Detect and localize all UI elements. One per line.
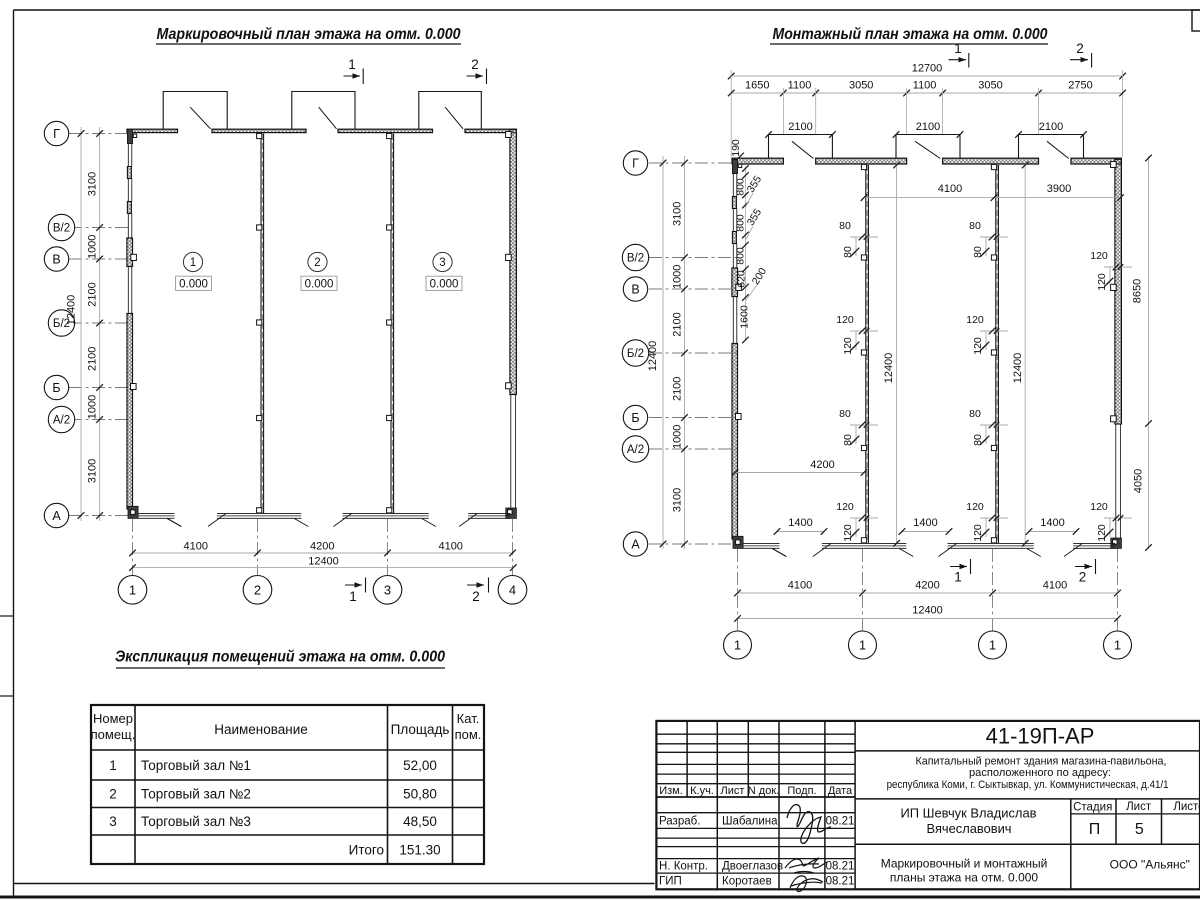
- svg-text:1000: 1000: [672, 265, 684, 289]
- svg-text:4100: 4100: [438, 541, 462, 553]
- svg-text:Стадия: Стадия: [1073, 801, 1112, 813]
- svg-text:80: 80: [972, 434, 984, 446]
- svg-text:Шабалина: Шабалина: [722, 816, 778, 828]
- svg-text:1650: 1650: [745, 80, 769, 92]
- svg-text:120: 120: [972, 524, 984, 542]
- svg-text:52,00: 52,00: [403, 758, 437, 773]
- svg-text:1100: 1100: [788, 80, 812, 92]
- svg-text:2: 2: [254, 583, 261, 598]
- svg-text:12400: 12400: [883, 353, 895, 384]
- svg-text:41-19П-АР: 41-19П-АР: [986, 724, 1095, 749]
- svg-text:120: 120: [1096, 524, 1108, 542]
- svg-text:1: 1: [954, 570, 962, 585]
- svg-text:2100: 2100: [788, 121, 812, 133]
- svg-text:3100: 3100: [672, 488, 684, 512]
- svg-text:1400: 1400: [1040, 517, 1064, 529]
- svg-text:120: 120: [966, 314, 984, 326]
- svg-text:К.уч.: К.уч.: [690, 785, 714, 797]
- svg-text:3: 3: [439, 257, 445, 269]
- svg-text:1: 1: [348, 57, 356, 72]
- svg-text:3100: 3100: [87, 459, 99, 483]
- svg-text:Б: Б: [631, 411, 639, 425]
- svg-text:4100: 4100: [1043, 580, 1067, 592]
- svg-text:1000: 1000: [87, 235, 99, 259]
- svg-text:Маркировочный план этажа на от: Маркировочный план этажа на отм. 0.000: [157, 26, 461, 43]
- svg-text:Изм.: Изм.: [659, 785, 683, 797]
- svg-text:120: 120: [842, 337, 854, 355]
- svg-text:Подп.: Подп.: [787, 785, 816, 797]
- svg-text:А/2: А/2: [627, 444, 644, 456]
- svg-text:12400: 12400: [308, 555, 339, 567]
- svg-text:Номер: Номер: [93, 711, 133, 726]
- svg-text:1: 1: [1114, 638, 1121, 653]
- svg-text:08.21: 08.21: [826, 861, 855, 873]
- svg-text:1600: 1600: [739, 305, 751, 329]
- svg-text:2100: 2100: [916, 121, 940, 133]
- svg-text:2: 2: [472, 589, 480, 604]
- svg-text:8650: 8650: [1132, 279, 1144, 303]
- svg-text:Б/2: Б/2: [627, 348, 644, 360]
- svg-text:4100: 4100: [938, 183, 962, 195]
- svg-text:120: 120: [842, 524, 854, 542]
- svg-text:5: 5: [1135, 821, 1144, 838]
- svg-text:Листов: Листов: [1173, 801, 1200, 813]
- svg-text:2: 2: [314, 257, 320, 269]
- svg-text:ИП Шевчук Владислав: ИП Шевчук Владислав: [901, 806, 1037, 820]
- svg-text:Н. Контр.: Н. Контр.: [659, 861, 708, 873]
- svg-text:2: 2: [1076, 41, 1084, 56]
- svg-text:4200: 4200: [915, 580, 939, 592]
- svg-text:2100: 2100: [672, 377, 684, 401]
- svg-text:4050: 4050: [1133, 469, 1145, 493]
- svg-text:190: 190: [730, 139, 742, 157]
- svg-text:Г: Г: [53, 127, 60, 141]
- svg-text:48,50: 48,50: [403, 814, 437, 829]
- svg-text:Площадь: Площадь: [391, 722, 450, 737]
- svg-text:1: 1: [989, 638, 996, 653]
- svg-text:Дата: Дата: [828, 785, 853, 797]
- svg-text:1: 1: [190, 257, 196, 269]
- svg-text:1: 1: [129, 583, 136, 598]
- svg-text:Б: Б: [52, 381, 60, 395]
- svg-text:120: 120: [1090, 250, 1108, 262]
- svg-text:Итого: Итого: [349, 843, 384, 858]
- svg-text:4100: 4100: [184, 541, 208, 553]
- svg-text:2100: 2100: [672, 312, 684, 336]
- svg-text:0.000: 0.000: [305, 278, 334, 290]
- svg-text:120: 120: [1090, 501, 1108, 513]
- svg-text:800: 800: [735, 214, 747, 232]
- svg-text:120: 120: [836, 501, 854, 513]
- svg-text:80: 80: [839, 220, 851, 232]
- svg-text:Торговый зал №3: Торговый зал №3: [141, 814, 251, 829]
- svg-text:1: 1: [954, 41, 962, 56]
- svg-text:1: 1: [109, 758, 117, 773]
- svg-text:Коротаев: Коротаев: [722, 876, 772, 888]
- svg-text:Лист: Лист: [721, 785, 745, 797]
- svg-text:республика Коми, г. Сыктывкар,: республика Коми, г. Сыктывкар, ул. Комму…: [887, 779, 1169, 791]
- svg-text:Монтажный план этажа на отм. 0: Монтажный план этажа на отм. 0.000: [773, 26, 1048, 43]
- svg-text:Лист: Лист: [1126, 801, 1152, 813]
- svg-text:120: 120: [836, 314, 854, 326]
- svg-text:120: 120: [966, 501, 984, 513]
- svg-text:800: 800: [735, 247, 747, 265]
- svg-text:1100: 1100: [913, 80, 937, 92]
- svg-text:80: 80: [839, 408, 851, 420]
- svg-text:Маркировочный и монтажный: Маркировочный и монтажный: [881, 856, 1048, 870]
- svg-text:N док.: N док.: [748, 785, 779, 797]
- svg-text:12700: 12700: [912, 63, 943, 75]
- svg-text:620: 620: [736, 270, 748, 288]
- svg-text:Вячеславович: Вячеславович: [927, 822, 1012, 836]
- svg-text:12400: 12400: [1012, 353, 1024, 384]
- svg-text:1000: 1000: [672, 425, 684, 449]
- svg-text:0.000: 0.000: [430, 278, 459, 290]
- svg-text:планы этажа на отм. 0.000: планы этажа на отм. 0.000: [890, 870, 1039, 884]
- svg-text:08.21: 08.21: [826, 816, 855, 828]
- svg-text:В: В: [631, 283, 639, 297]
- svg-text:2100: 2100: [87, 347, 99, 371]
- svg-text:151.30: 151.30: [399, 843, 440, 858]
- svg-text:2100: 2100: [87, 282, 99, 306]
- svg-text:А/2: А/2: [53, 415, 70, 427]
- svg-text:Двоеглазов: Двоеглазов: [722, 861, 783, 873]
- svg-text:80: 80: [842, 246, 854, 258]
- svg-text:В/2: В/2: [627, 253, 644, 265]
- svg-text:Торговый зал №2: Торговый зал №2: [141, 787, 251, 802]
- svg-text:4200: 4200: [310, 541, 334, 553]
- svg-text:А: А: [631, 538, 640, 552]
- svg-text:4100: 4100: [788, 580, 812, 592]
- svg-text:ООО "Альянс": ООО "Альянс": [1110, 858, 1190, 872]
- svg-text:Г: Г: [632, 157, 639, 171]
- svg-text:В/2: В/2: [53, 223, 70, 235]
- svg-text:2750: 2750: [1068, 80, 1092, 92]
- svg-text:В: В: [52, 253, 60, 267]
- svg-text:2: 2: [1079, 570, 1087, 585]
- svg-text:помещ.: помещ.: [91, 727, 136, 742]
- svg-text:2: 2: [109, 787, 117, 802]
- svg-text:1: 1: [859, 638, 866, 653]
- svg-text:12400: 12400: [66, 295, 78, 326]
- svg-text:3050: 3050: [849, 80, 873, 92]
- svg-text:80: 80: [969, 408, 981, 420]
- svg-text:3100: 3100: [87, 172, 99, 196]
- svg-text:расположенного по адресу:: расположенного по адресу:: [969, 767, 1111, 779]
- svg-text:4: 4: [509, 583, 516, 598]
- svg-text:0.000: 0.000: [179, 278, 208, 290]
- svg-text:120: 120: [1096, 273, 1108, 291]
- svg-text:3900: 3900: [1047, 183, 1071, 195]
- svg-text:П: П: [1089, 821, 1101, 838]
- svg-text:Торговый зал №1: Торговый зал №1: [141, 758, 251, 773]
- svg-text:2: 2: [471, 57, 479, 72]
- svg-text:80: 80: [972, 246, 984, 258]
- svg-text:80: 80: [842, 434, 854, 446]
- svg-text:1400: 1400: [788, 517, 812, 529]
- svg-text:А: А: [52, 509, 61, 523]
- svg-text:Капитальный ремонт здания мага: Капитальный ремонт здания магазина-павил…: [916, 756, 1167, 768]
- svg-text:Экспликация помещений этажа на: Экспликация помещений этажа на отм. 0.00…: [115, 649, 445, 666]
- svg-text:08.21: 08.21: [826, 876, 855, 888]
- svg-text:пом.: пом.: [455, 727, 482, 742]
- svg-text:3: 3: [109, 814, 117, 829]
- svg-text:12400: 12400: [647, 341, 659, 372]
- svg-text:2100: 2100: [1039, 121, 1063, 133]
- svg-text:Кат.: Кат.: [457, 711, 480, 726]
- svg-text:1: 1: [349, 589, 357, 604]
- svg-text:1000: 1000: [87, 395, 99, 419]
- svg-text:Наименование: Наименование: [214, 722, 308, 737]
- svg-text:4200: 4200: [810, 459, 834, 471]
- svg-text:ГИП: ГИП: [659, 876, 682, 888]
- svg-text:1: 1: [734, 638, 741, 653]
- svg-text:1400: 1400: [913, 517, 937, 529]
- svg-text:80: 80: [969, 220, 981, 232]
- svg-text:3: 3: [384, 583, 391, 598]
- svg-text:120: 120: [972, 337, 984, 355]
- svg-text:12400: 12400: [912, 605, 943, 617]
- svg-text:50,80: 50,80: [403, 787, 437, 802]
- svg-text:Разраб.: Разраб.: [659, 816, 700, 828]
- svg-text:3100: 3100: [672, 202, 684, 226]
- svg-text:3050: 3050: [978, 80, 1002, 92]
